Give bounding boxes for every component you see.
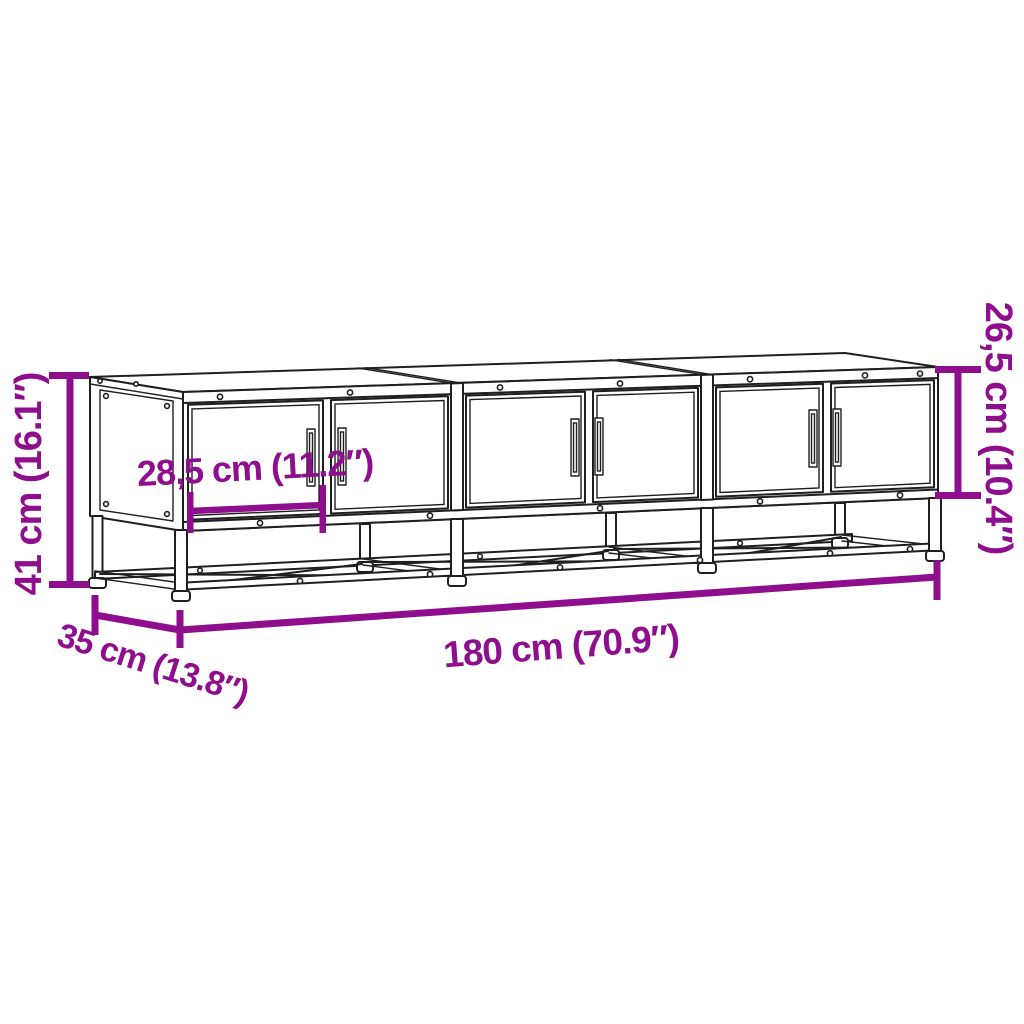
door-5 — [716, 384, 823, 497]
cabinet-body — [90, 353, 938, 531]
dimension-diagram: 41 cm (16.1″) 26,5 cm (10.4″) 28,5 cm (1… — [0, 0, 1024, 1024]
divider-stile-1 — [451, 383, 463, 511]
door-6 — [831, 380, 934, 492]
door-handle — [595, 418, 603, 475]
divider-stile-2 — [701, 375, 713, 501]
cross-braces — [100, 537, 932, 586]
door-3 — [466, 392, 585, 508]
dimension-body-height — [935, 366, 981, 499]
door-handle — [571, 419, 579, 476]
door-4 — [593, 388, 698, 502]
cabinet-line-drawing — [0, 0, 1024, 1024]
door-handle — [833, 409, 841, 466]
dimension-overall-height — [49, 372, 89, 588]
overall-height-label: 41 cm (16.1″) — [10, 373, 48, 596]
body-height-label: 26,5 cm (10.4″) — [979, 302, 1017, 554]
door-handle — [809, 410, 817, 467]
